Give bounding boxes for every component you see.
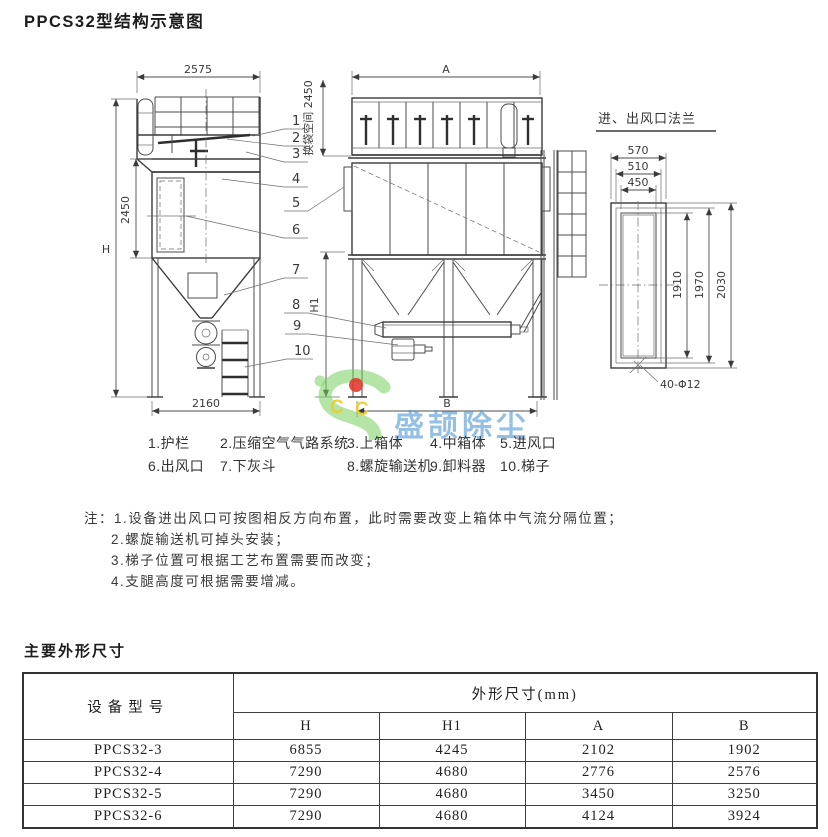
callout-4: 4 — [292, 172, 300, 187]
dim-flange-bolt-width: 510 — [628, 160, 649, 173]
parts-legend: 1.护栏 2.压缩空气气路系统 3.上箱体 4.中箱体 5.进风口 6.出风口 … — [146, 433, 706, 483]
table-row: PPCS32-3 6855 4245 2102 1902 — [23, 740, 817, 762]
flange-view: 进、出风口法兰 570 510 450 1910 — [596, 111, 737, 391]
a-cell: 2102 — [525, 740, 672, 762]
note-line-1: 注：1.设备进出风口可按图相反方向布置，此时需要改变上箱体中气流分隔位置； — [84, 508, 623, 529]
pulse-valves — [360, 115, 534, 145]
a-cell: 3450 — [525, 784, 672, 806]
callout-1: 1 — [292, 114, 300, 129]
a-cell: 2776 — [525, 762, 672, 784]
dim-flange-opening-width: 450 — [628, 176, 649, 189]
legend-item-2: 2.压缩空气气路系统 — [220, 433, 349, 453]
dim-bag-zone: 2450 — [119, 196, 132, 224]
callout-5: 5 — [292, 196, 300, 211]
dim-flange-opening-height: 1910 — [671, 271, 684, 299]
table-row: PPCS32-6 7290 4680 4124 3924 — [23, 806, 817, 829]
column-header-h1: H1 — [379, 713, 525, 740]
column-header-b: B — [672, 713, 817, 740]
legend-item-9: 9.卸料器 — [430, 456, 486, 476]
notes-label: 注： — [84, 511, 114, 526]
callout-7: 7 — [292, 263, 300, 278]
b-cell: 1902 — [672, 740, 817, 762]
h1-cell: 4680 — [379, 784, 525, 806]
watermark-dot-icon — [349, 378, 363, 392]
dim-support-height: H1 — [308, 297, 321, 312]
column-header-h: H — [233, 713, 379, 740]
dim-front-base: B — [443, 397, 451, 410]
callout-8: 8 — [292, 298, 300, 313]
column-header-a: A — [525, 713, 672, 740]
watermark-leaf-icon — [315, 376, 326, 387]
h1-cell: 4680 — [379, 806, 525, 829]
model-cell: PPCS32-4 — [23, 762, 233, 784]
h-cell: 7290 — [233, 784, 379, 806]
legend-item-1: 1.护栏 — [148, 433, 190, 453]
table-row: PPCS32-4 7290 4680 2776 2576 — [23, 762, 817, 784]
watermark-letter-2: C — [355, 399, 369, 420]
legend-item-10: 10.梯子 — [500, 456, 550, 476]
dimensions-group-header: 外形尺寸(mm) — [233, 673, 817, 713]
dim-front-width: A — [442, 63, 450, 76]
note-item-1: 1.设备进出风口可按图相反方向布置，此时需要改变上箱体中气流分隔位置； — [114, 511, 623, 526]
table-row: PPCS32-5 7290 4680 3450 3250 — [23, 784, 817, 806]
h1-cell: 4245 — [379, 740, 525, 762]
model-cell: PPCS32-6 — [23, 806, 233, 829]
schematic-drawing: 2575 — [0, 55, 828, 440]
model-cell: PPCS32-3 — [23, 740, 233, 762]
notes-block: 注：1.设备进出风口可按图相反方向布置，此时需要改变上箱体中气流分隔位置； 2.… — [84, 508, 623, 592]
dim-bag-space: 换袋空间 2450 — [301, 80, 315, 156]
callout-9: 9 — [293, 319, 301, 334]
legend-item-6: 6.出风口 — [148, 456, 204, 476]
callout-2: 2 — [292, 131, 300, 146]
dim-base-width: 2160 — [192, 397, 220, 410]
dim-flange-outer-width: 570 — [628, 144, 649, 157]
legend-item-8: 8.螺旋输送机 — [347, 456, 432, 476]
dim-total-height: H — [102, 243, 110, 256]
a-cell: 4124 — [525, 806, 672, 829]
h-cell: 6855 — [233, 740, 379, 762]
callout-6: 6 — [292, 223, 300, 238]
legend-item-3: 3.上箱体 — [347, 433, 403, 453]
callouts: 1 2 3 4 5 6 7 8 9 10 — [186, 114, 398, 367]
dim-flange-outer-height: 2030 — [715, 271, 728, 299]
h1-cell: 4680 — [379, 762, 525, 784]
watermark: C C 盛颉除尘 — [315, 376, 531, 441]
front-view: A 换袋空间 2450 — [301, 63, 586, 417]
note-item-2: 2.螺旋输送机可掉头安装； — [111, 529, 623, 550]
table-header-group-row: 设备型号 外形尺寸(mm) — [23, 673, 817, 713]
model-cell: PPCS32-5 — [23, 784, 233, 806]
dim-side-width: 2575 — [184, 63, 212, 76]
flange-title: 进、出风口法兰 — [598, 111, 696, 126]
catalog-page: PPCS32型结构示意图 2575 — [0, 0, 828, 837]
callout-10: 10 — [294, 344, 311, 359]
legend-item-7: 7.下灰斗 — [220, 456, 276, 476]
model-column-header: 设备型号 — [23, 673, 233, 740]
watermark-letter-1: C — [330, 397, 344, 418]
note-item-4: 4.支腿高度可根据需要增减。 — [111, 571, 623, 592]
dim-bolt-holes: 40-Φ12 — [660, 378, 701, 391]
b-cell: 3924 — [672, 806, 817, 829]
legend-item-4: 4.中箱体 — [430, 433, 486, 453]
page-title: PPCS32型结构示意图 — [24, 8, 204, 32]
callout-3: 3 — [292, 147, 300, 162]
note-item-3: 3.梯子位置可根据工艺布置需要而改变； — [111, 550, 623, 571]
b-cell: 2576 — [672, 762, 817, 784]
h-cell: 7290 — [233, 762, 379, 784]
dimensions-table: 设备型号 外形尺寸(mm) H H1 A B PPCS32-3 6855 424… — [22, 672, 818, 829]
dimensions-section-title: 主要外形尺寸 — [24, 640, 126, 661]
legend-item-5: 5.进风口 — [500, 433, 556, 453]
b-cell: 3250 — [672, 784, 817, 806]
h-cell: 7290 — [233, 806, 379, 829]
dim-flange-bolt-height: 1970 — [693, 271, 706, 299]
